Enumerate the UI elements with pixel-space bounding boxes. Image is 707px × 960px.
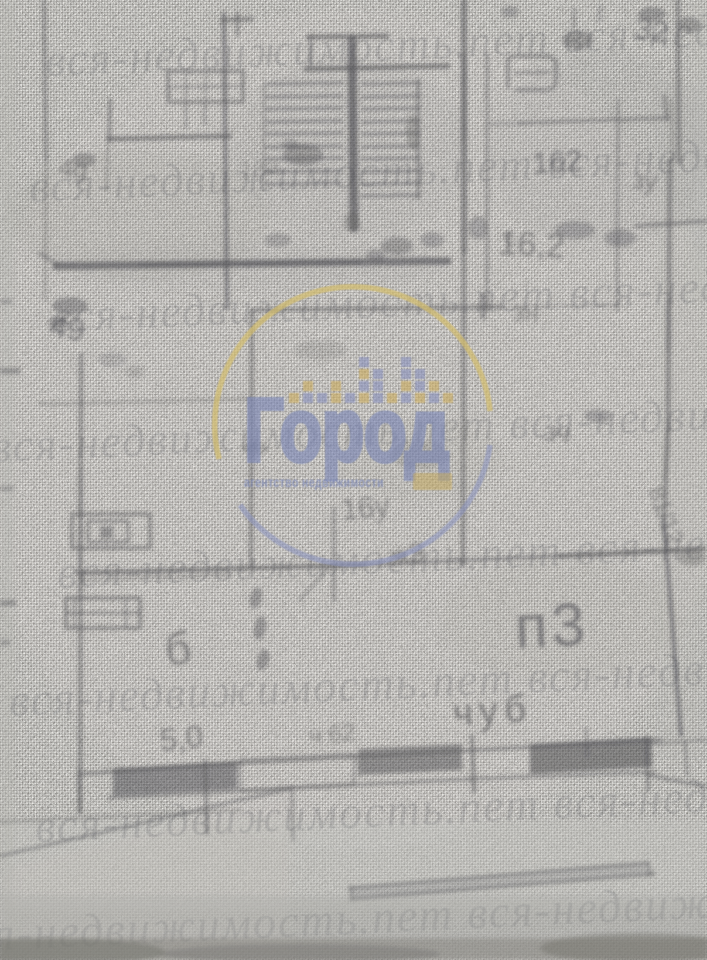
svg-text:агентство недвижимости: агентство недвижимости — [244, 475, 384, 491]
svg-text:зн: зн — [512, 296, 540, 328]
svg-text:чуб: чуб — [452, 688, 534, 735]
svg-text:ч 62: ч 62 — [308, 719, 356, 750]
svg-text:с: с — [504, 222, 517, 252]
svg-text:162: 162 — [531, 145, 583, 181]
svg-text:п3: п3 — [513, 590, 590, 661]
svg-text:Город: Город — [244, 381, 449, 481]
svg-text:5,0: 5,0 — [158, 719, 205, 758]
svg-text:зу: зу — [631, 164, 658, 196]
svg-text:18и: 18и — [239, 154, 281, 184]
svg-text:16у: 16у — [340, 490, 391, 527]
svg-text:зч: зч — [542, 415, 572, 449]
